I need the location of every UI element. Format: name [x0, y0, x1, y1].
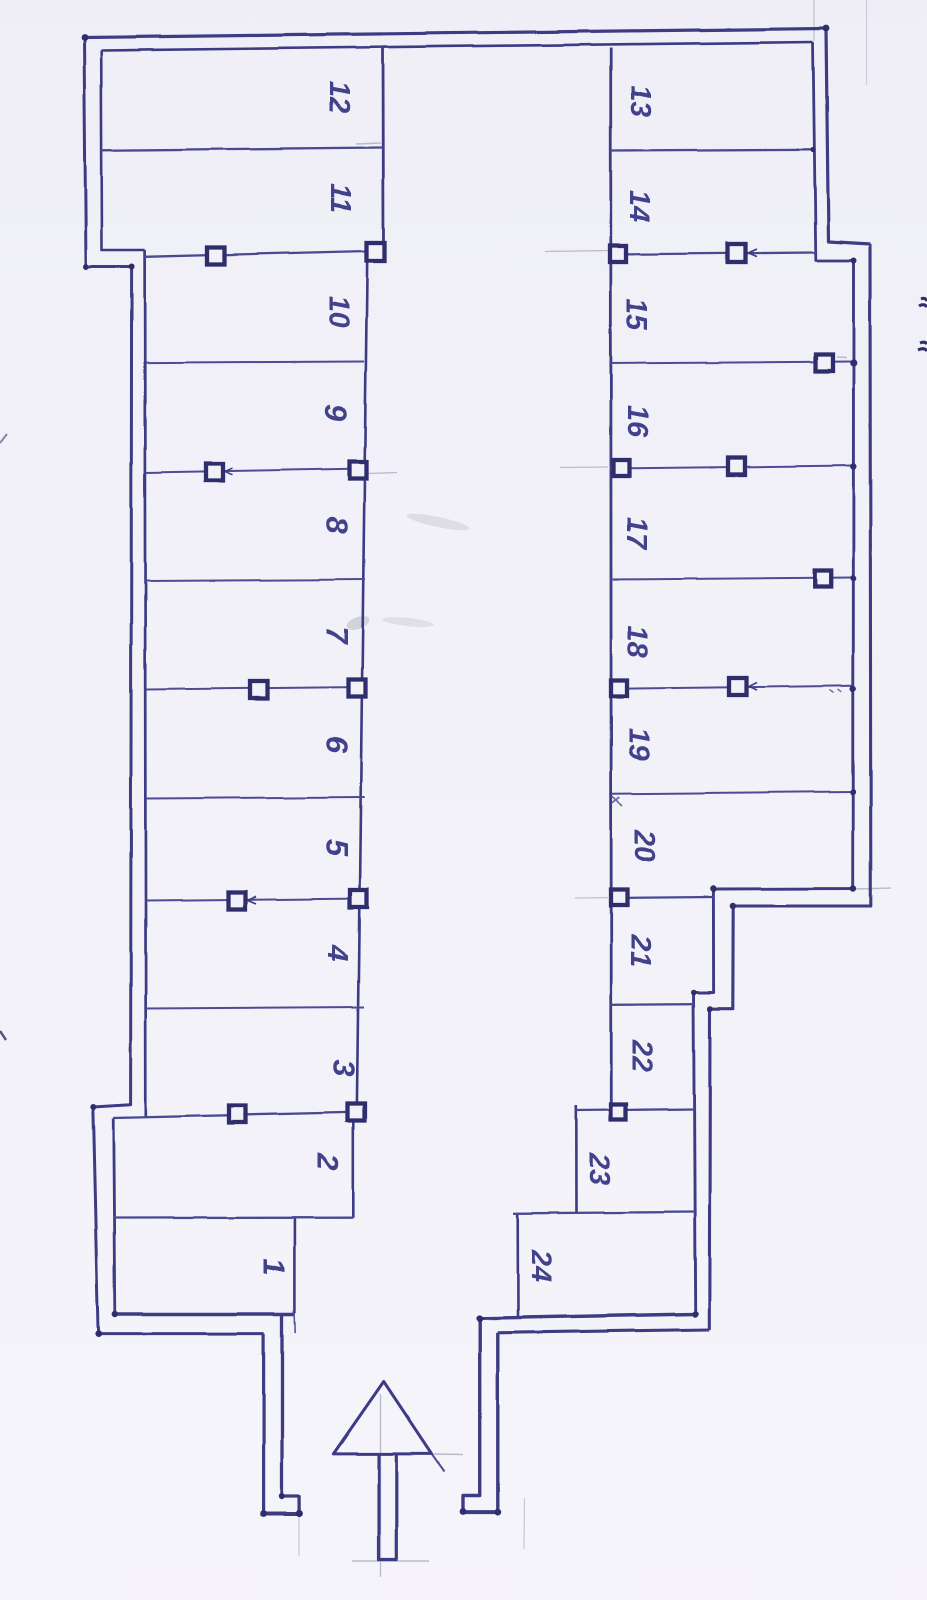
svg-text:1: 1 — [257, 1258, 292, 1275]
svg-text:12: 12 — [323, 81, 355, 113]
svg-text:23: 23 — [583, 1152, 615, 1185]
svg-text:16: 16 — [621, 405, 653, 438]
svg-text:22: 22 — [626, 1039, 658, 1072]
svg-text:10: 10 — [322, 296, 354, 328]
svg-text:4: 4 — [321, 944, 353, 961]
svg-text:3: 3 — [327, 1059, 362, 1076]
svg-text:20: 20 — [628, 829, 660, 862]
svg-text:14: 14 — [623, 190, 655, 222]
svg-text:8: 8 — [320, 516, 355, 534]
svg-text:19: 19 — [622, 728, 654, 760]
svg-text:7: 7 — [320, 626, 355, 645]
svg-text:24: 24 — [525, 1249, 557, 1282]
svg-text:5: 5 — [320, 839, 355, 857]
svg-text:9: 9 — [319, 403, 354, 421]
svg-text:21: 21 — [624, 934, 656, 967]
svg-text:17: 17 — [620, 517, 652, 551]
svg-text:2: 2 — [311, 1152, 346, 1170]
svg-text:13: 13 — [624, 85, 656, 117]
svg-text:18: 18 — [621, 625, 653, 658]
svg-text:15: 15 — [620, 298, 652, 331]
svg-text:6: 6 — [320, 735, 355, 753]
svg-text:11: 11 — [324, 183, 356, 213]
